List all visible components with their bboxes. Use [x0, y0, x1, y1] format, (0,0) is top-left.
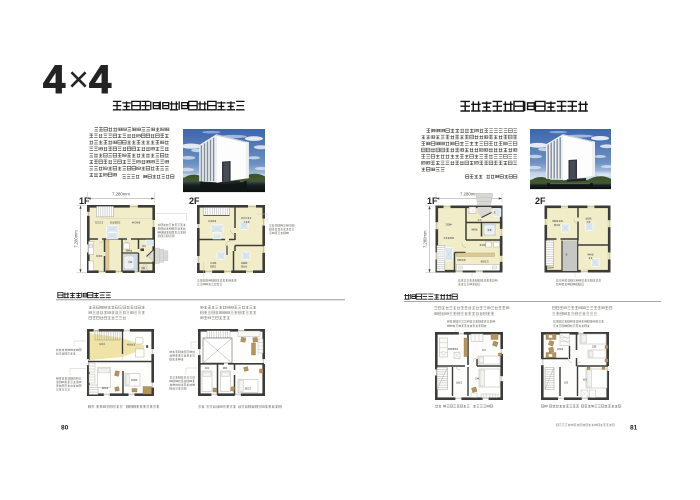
svg-text:×: ×	[68, 59, 89, 100]
svg-text:7,280mm: 7,280mm	[423, 230, 428, 248]
svg-text:81: 81	[630, 425, 638, 432]
svg-text:7,280mm: 7,280mm	[460, 192, 478, 197]
svg-text:2F: 2F	[189, 196, 200, 206]
svg-text:1F: 1F	[79, 196, 90, 206]
svg-text:4: 4	[89, 58, 112, 102]
svg-text:80: 80	[61, 425, 69, 432]
svg-text:7,280mm: 7,280mm	[112, 192, 130, 197]
svg-text:7,280mm: 7,280mm	[74, 230, 79, 248]
svg-text:4: 4	[43, 58, 66, 102]
svg-text:2F: 2F	[535, 196, 546, 206]
svg-text:1F: 1F	[427, 196, 438, 206]
